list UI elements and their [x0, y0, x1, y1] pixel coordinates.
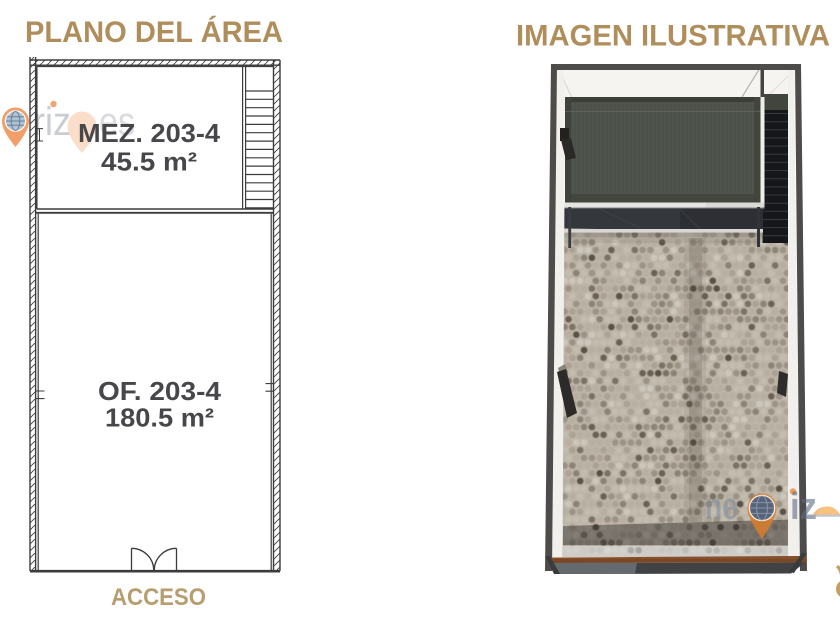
svg-text:ACCESO: ACCESO — [111, 584, 206, 611]
svg-text:riz: riz — [33, 100, 71, 144]
svg-text:180.5 m²: 180.5 m² — [105, 403, 214, 433]
svg-text:OF. 203-4: OF. 203-4 — [98, 376, 222, 406]
svg-text:MEZ. 203-4: MEZ. 203-4 — [78, 118, 221, 148]
svg-text:iz: iz — [790, 486, 817, 528]
svg-text:IMAGEN ILUSTRATIVA: IMAGEN ILUSTRATIVA — [516, 20, 830, 53]
svg-text:45.5 m²: 45.5 m² — [101, 147, 197, 177]
svg-text:ne: ne — [705, 486, 738, 528]
svg-text:PLANO DEL ÁREA: PLANO DEL ÁREA — [25, 15, 283, 49]
